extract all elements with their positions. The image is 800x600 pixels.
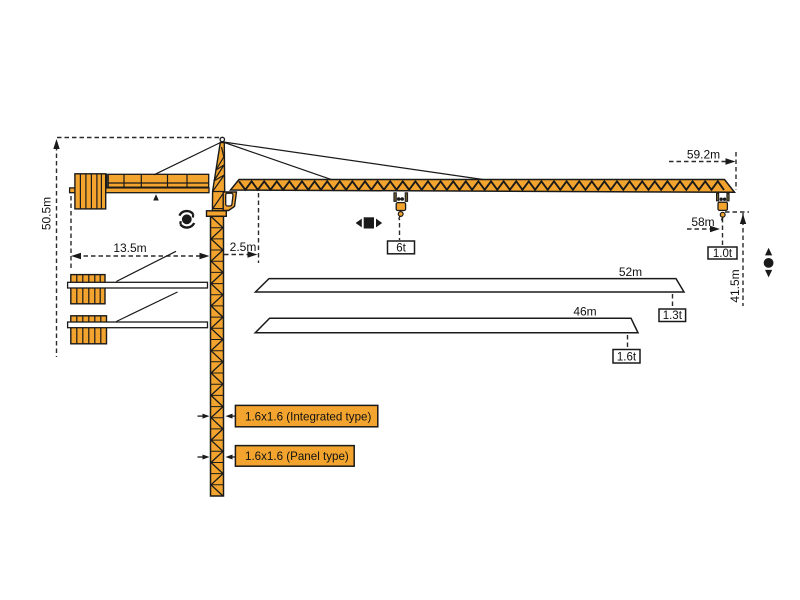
svg-text:1.0t: 1.0t <box>713 248 733 260</box>
svg-text:52m: 52m <box>619 265 642 279</box>
svg-text:1.6t: 1.6t <box>617 351 637 363</box>
svg-text:2.5m: 2.5m <box>230 240 257 254</box>
svg-text:58m: 58m <box>691 215 714 229</box>
svg-text:50.5m: 50.5m <box>40 197 54 230</box>
svg-text:1.6x1.6 (Integrated type): 1.6x1.6 (Integrated type) <box>245 410 371 423</box>
svg-text:13.5m: 13.5m <box>113 241 146 255</box>
svg-text:1.6x1.6 (Panel type): 1.6x1.6 (Panel type) <box>245 450 349 463</box>
svg-text:59.2m: 59.2m <box>687 148 720 162</box>
svg-text:1.3t: 1.3t <box>663 310 683 322</box>
svg-text:46m: 46m <box>573 305 596 319</box>
svg-text:41.5m: 41.5m <box>728 269 742 302</box>
svg-text:6t: 6t <box>396 242 406 254</box>
